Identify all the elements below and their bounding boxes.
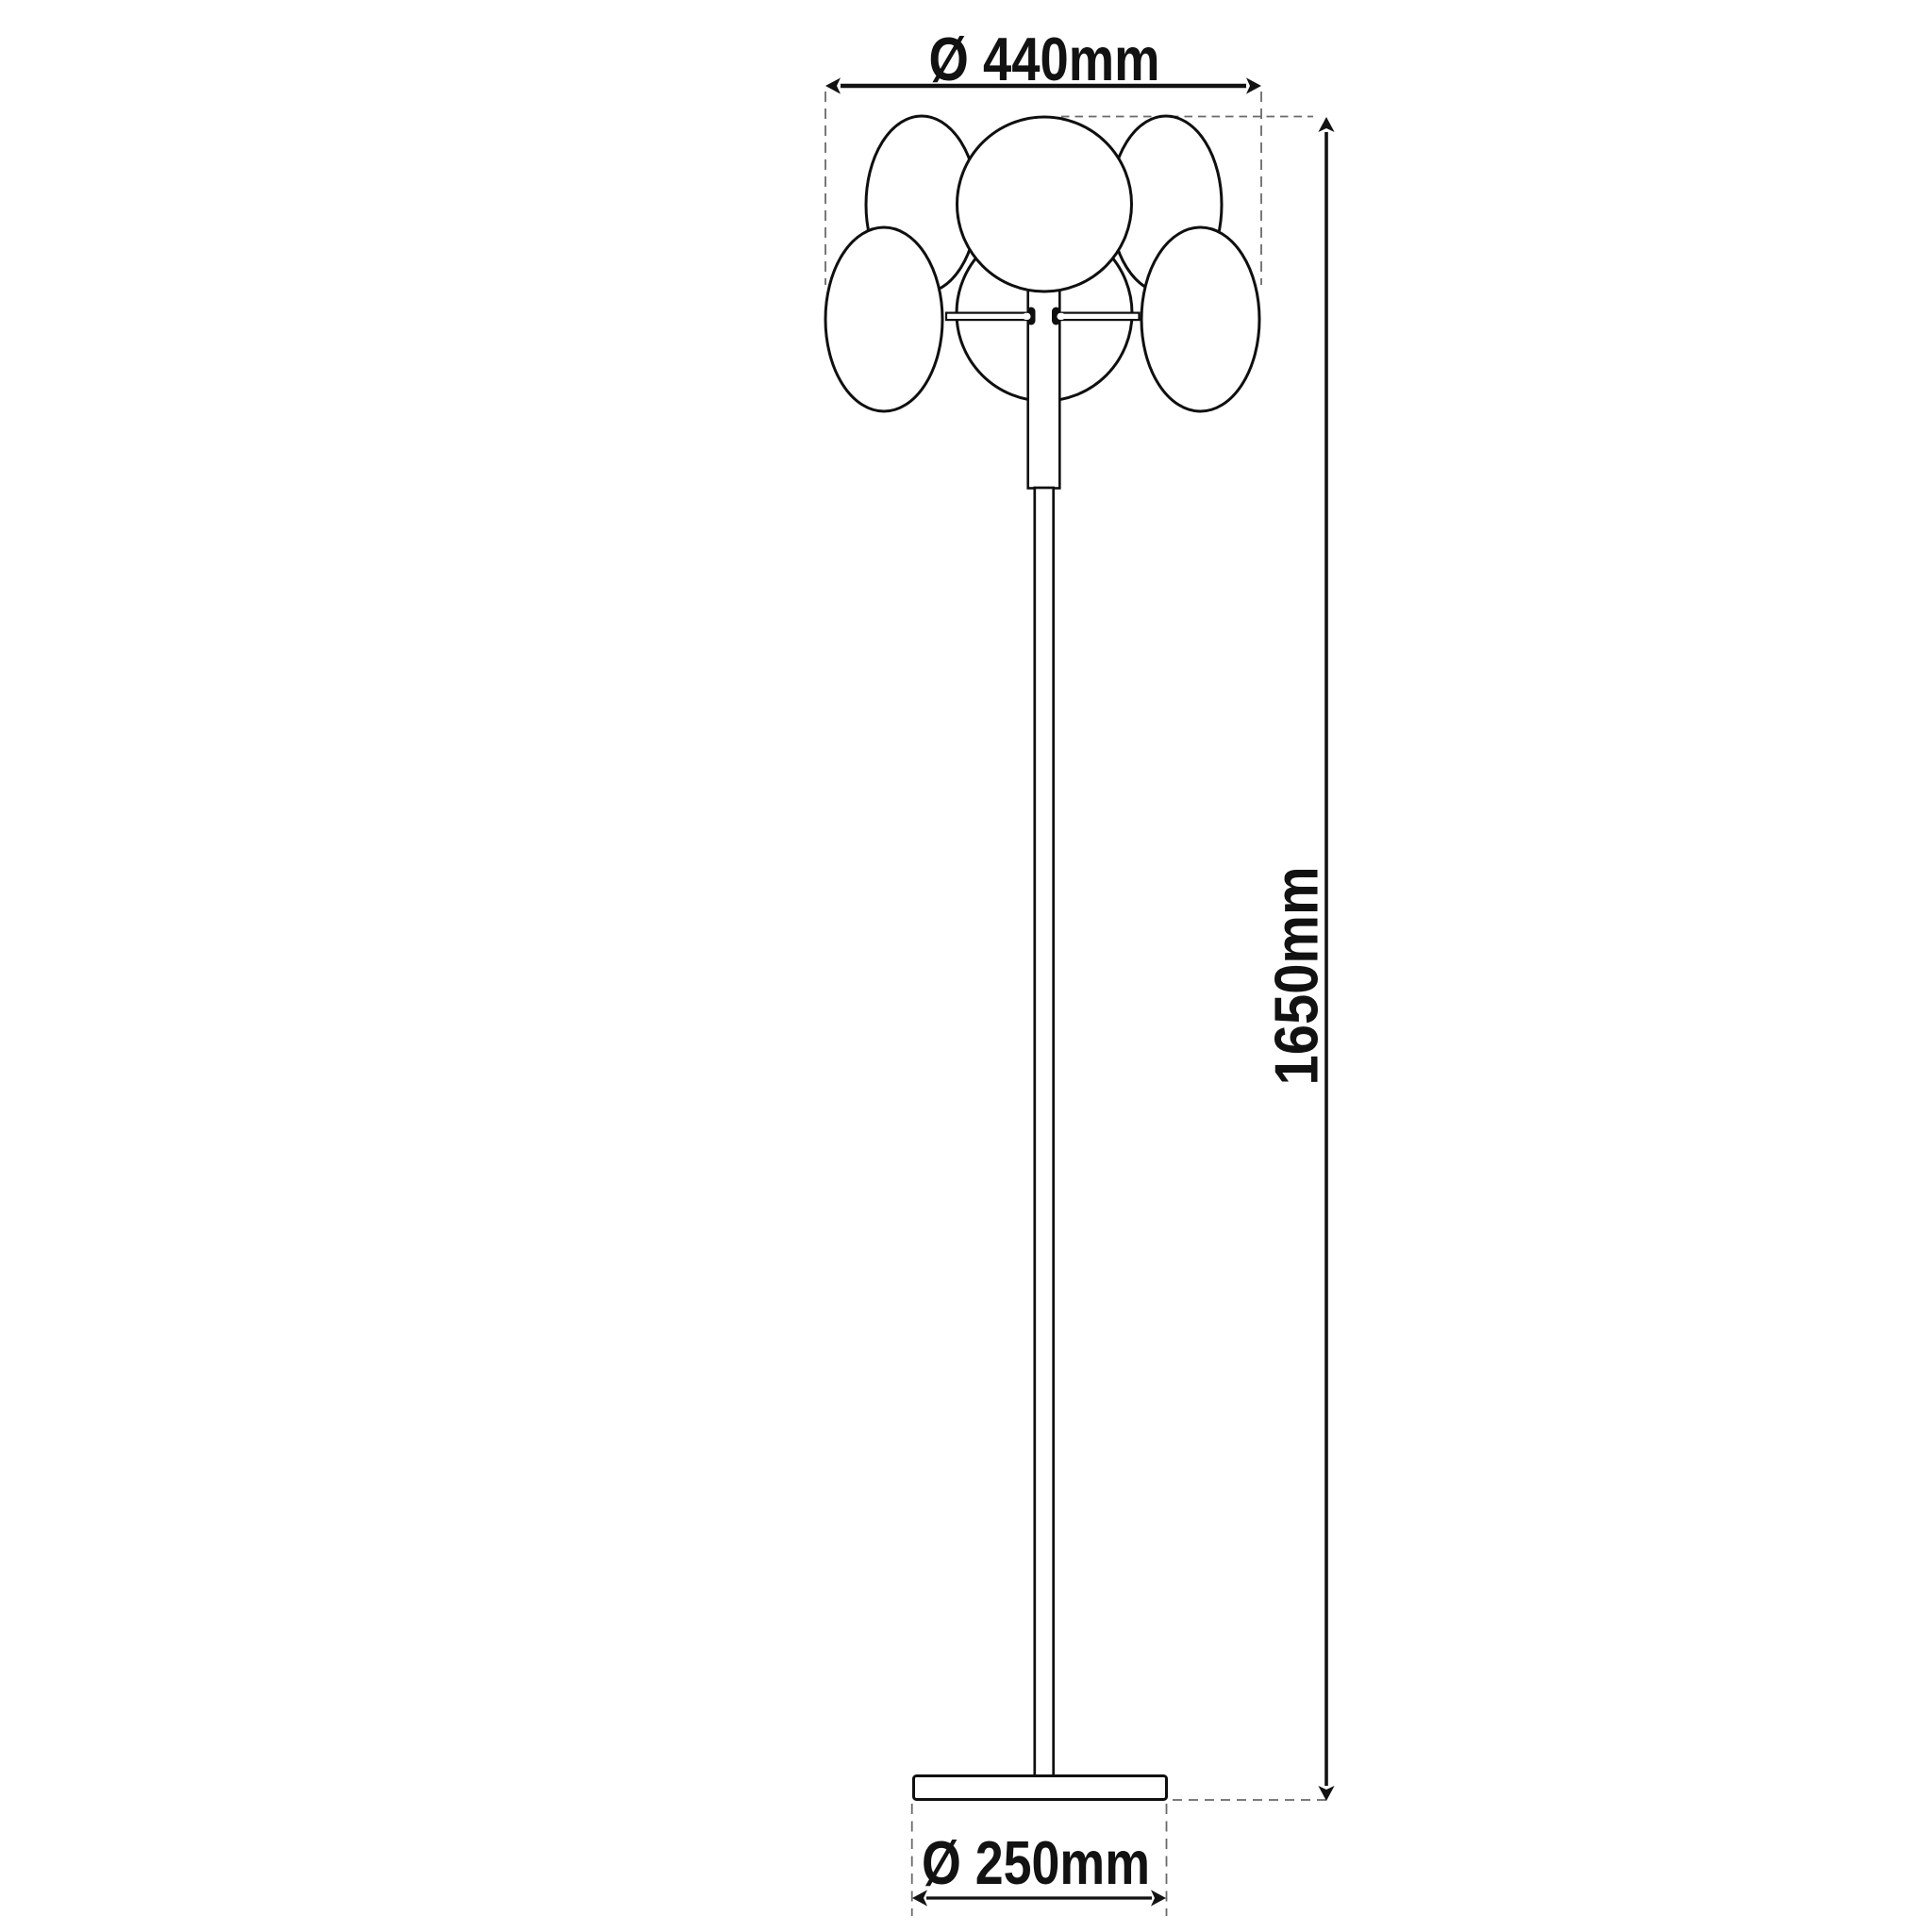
svg-text:Ø 250mm: Ø 250mm <box>922 1828 1150 1897</box>
svg-text:1650mm: 1650mm <box>1262 867 1331 1086</box>
svg-text:Ø 440mm: Ø 440mm <box>929 25 1160 93</box>
